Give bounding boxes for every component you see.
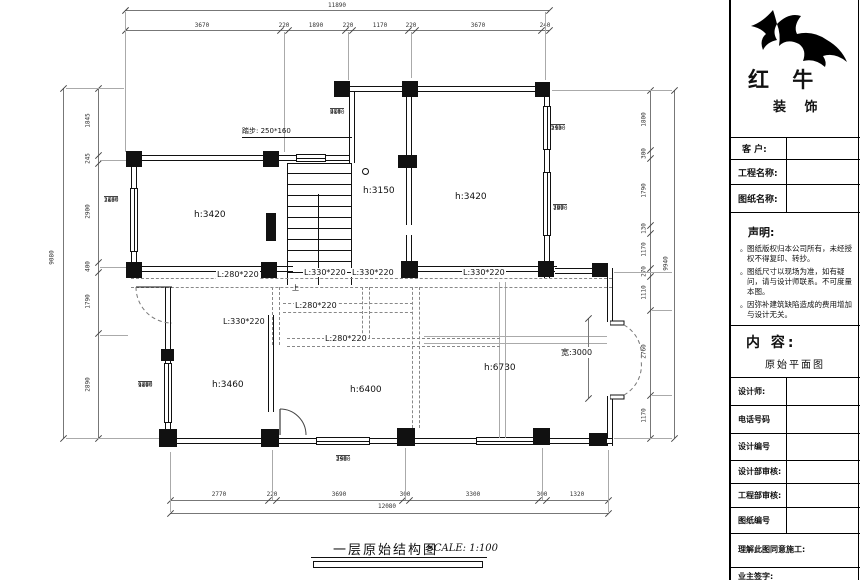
column [589, 433, 607, 446]
divider-line [731, 533, 860, 534]
beam-line [412, 287, 413, 428]
floor-plan: 11890 3670 220 1890 220 1170 220 3670 24… [0, 0, 730, 580]
dim-value: 220 [267, 22, 301, 29]
extension-line [652, 395, 672, 396]
room-height-label: h:3150 [363, 186, 395, 196]
dim-value: 3690 [322, 491, 356, 498]
field-label-designer: 设计师: [738, 386, 765, 397]
dim-value: 110 [551, 124, 562, 132]
field-label-customer: 客 户: [742, 142, 767, 155]
dim-value: 245 [85, 142, 92, 176]
beam-line [369, 287, 370, 338]
beam-line [287, 338, 500, 339]
room-height-label: h:3420 [455, 192, 487, 202]
beam-label: L:280*220 [216, 270, 260, 279]
column [538, 261, 554, 277]
staircase-edge [287, 163, 352, 164]
statement-title: 声明: [748, 224, 774, 240]
beam-line [272, 287, 273, 345]
beam-label: L:280*220 [294, 301, 338, 310]
beam-label: L:330*220 [462, 268, 506, 277]
window [164, 363, 172, 423]
room-height-label: h:3420 [194, 210, 226, 220]
drawing-sheet: 11890 3670 220 1890 220 1170 220 3670 24… [0, 0, 860, 580]
drawing-scale: SCALE: 1:100 [427, 543, 498, 554]
column [401, 261, 418, 278]
statement-item: 图纸版权归本公司所有，未经授权不得复印、转抄。 [740, 244, 854, 264]
statement-list: 图纸版权归本公司所有，未经授权不得复印、转抄。 图纸尺寸以现场为准，如有疑问，请… [740, 244, 854, 323]
dim-value: 2770 [202, 491, 236, 498]
wall [268, 315, 274, 412]
dim-value: 1845 [85, 104, 92, 138]
column [398, 155, 417, 168]
dim-value: 11890 [320, 2, 354, 9]
column [161, 349, 174, 361]
dim-value: 400 [85, 250, 92, 284]
beam-label: L:330*220 [222, 317, 266, 326]
beam-line [362, 287, 363, 338]
extension-line [411, 32, 412, 78]
entry-door [133, 282, 175, 328]
interior-door [277, 406, 307, 438]
dim-tick [585, 395, 592, 402]
dim-line-bottom-total [170, 513, 608, 514]
title-block: 红 牛 装 饰 客 户: 工程名称: 图纸名称: 声明: 图纸版权归本公司所有，… [729, 0, 860, 580]
border-line [858, 0, 859, 580]
company-name: 红 牛 [748, 64, 821, 94]
field-label-construction-consent: 理解此图同意施工: [738, 544, 805, 555]
dim-value: 1890 [299, 22, 333, 29]
divider-line [731, 460, 860, 461]
dim-line-left-total [63, 88, 64, 438]
extension-line [125, 12, 126, 152]
field-label-phone: 电话号码 [738, 414, 770, 425]
extension-line [545, 12, 546, 80]
window [476, 437, 534, 445]
beam-label: L:330*220 [303, 268, 347, 277]
dim-line-right-segments [650, 90, 651, 438]
structure-line [499, 282, 500, 438]
column [266, 213, 276, 241]
extension-line [100, 335, 128, 336]
dim-value: 150 [336, 455, 347, 463]
dim-value: 1790 [85, 285, 92, 319]
divider-line [731, 212, 860, 213]
dim-line-bottom-segments [170, 500, 608, 501]
column [263, 151, 279, 167]
structure-line [505, 282, 506, 438]
point-marker [362, 168, 369, 175]
field-label-drawing-name: 图纸名称: [738, 192, 778, 205]
extension-line [66, 88, 124, 89]
dim-value: 1170 [363, 22, 397, 29]
column [535, 82, 550, 97]
extension-line [608, 450, 609, 512]
stair-up-label: 上 [292, 283, 299, 293]
dim-value: 950 [330, 108, 341, 116]
statement-item: 因弥补建筑缺陷造成的费用增加与设计无关。 [740, 300, 854, 320]
dim-value: 900 [138, 381, 149, 389]
divider-line [731, 507, 860, 508]
dim-value: 1790 [641, 174, 648, 208]
divider-line [731, 184, 860, 185]
extension-line [100, 267, 128, 268]
extension-line [272, 450, 273, 500]
wall [418, 86, 549, 92]
beam-label: L:330*220 [351, 268, 395, 277]
dim-value: 2890 [85, 368, 92, 402]
door-width-label: 宽:3000 [560, 347, 593, 358]
dim-value: 1800 [641, 103, 648, 137]
beam-label: L:280*220 [324, 334, 368, 343]
extension-line [405, 448, 406, 500]
title-underline [311, 557, 487, 558]
beam-line [287, 346, 500, 347]
field-label-drawing-no: 图纸编号 [738, 515, 770, 526]
room-height-label: h:6400 [350, 385, 382, 395]
company-logo-bull-icon [739, 6, 851, 68]
staircase-treads [288, 173, 351, 283]
dim-value: 780 [553, 204, 564, 212]
door-dim-line [588, 318, 589, 398]
window [543, 106, 551, 150]
dim-line-right-total [674, 90, 675, 438]
title-underline-bar [313, 561, 483, 568]
window [543, 172, 551, 236]
extension-line [348, 32, 349, 80]
field-label-design-no: 设计编号 [738, 441, 770, 452]
dim-value: 3670 [185, 22, 219, 29]
dim-line-top-total [125, 10, 549, 11]
column [126, 262, 142, 278]
beam-line [419, 287, 420, 428]
divider-line [731, 483, 860, 484]
column [397, 428, 415, 446]
stair-tread-label: 踏步: 250*160 [242, 126, 291, 136]
dim-value: 1110 [641, 276, 648, 310]
dim-value: 1320 [560, 491, 594, 498]
extension-line [100, 160, 128, 161]
divider-line [731, 377, 860, 378]
divider-line [731, 137, 860, 138]
structure-line [424, 343, 607, 344]
content-value: 原始平面图 [765, 356, 825, 371]
leader-line [242, 137, 352, 138]
beam-line [279, 287, 280, 345]
wall [349, 88, 355, 163]
field-label-project-name: 工程名称: [738, 166, 778, 179]
column [126, 151, 142, 167]
extension-line [66, 438, 166, 439]
window [130, 188, 138, 252]
column [334, 81, 350, 97]
wall [131, 155, 281, 161]
column [592, 263, 608, 277]
divider-line [731, 159, 860, 160]
field-label-engineering-review: 工程部审核: [738, 490, 781, 501]
divider-line [786, 377, 787, 533]
dim-value: 3670 [461, 22, 495, 29]
window [296, 154, 326, 162]
room-height-label: h:3460 [212, 380, 244, 390]
content-title: 内 容: [746, 332, 796, 352]
dim-tick [671, 435, 678, 442]
extension-line [614, 272, 672, 273]
dim-value: 2900 [85, 195, 92, 229]
column [402, 81, 418, 97]
staircase-edge [351, 163, 352, 285]
dim-tick [546, 7, 553, 14]
divider-line [731, 567, 860, 568]
extension-line [170, 452, 171, 512]
window [316, 437, 370, 445]
extension-line [652, 310, 672, 311]
extension-line [542, 448, 543, 500]
extension-line [614, 438, 672, 439]
column [533, 428, 550, 445]
extension-line [552, 90, 672, 91]
dim-value: 9940 [663, 247, 670, 281]
column [159, 429, 177, 447]
dim-value: 9080 [49, 241, 56, 275]
dim-value: 3300 [456, 491, 490, 498]
beam-line [131, 278, 612, 279]
divider-line [731, 433, 860, 434]
divider-line [786, 137, 787, 212]
divider-line [731, 405, 860, 406]
beam-line [283, 312, 413, 313]
divider-line [731, 325, 860, 326]
statement-item: 图纸尺寸以现场为准，如有疑问，请与设计师联系。不可度量本图。 [740, 267, 854, 297]
dim-value: 110 [104, 196, 115, 204]
room-height-label: h:6730 [484, 363, 516, 373]
structure-line [424, 336, 607, 337]
column [261, 262, 277, 278]
beam-line [131, 287, 612, 288]
double-door [610, 316, 644, 404]
field-label-design-review: 设计部审核: [738, 466, 781, 477]
company-name-sub: 装 饰 [773, 96, 825, 115]
field-label-owner-signature: 业主签字: [738, 571, 773, 580]
dim-line-top-segments [125, 30, 549, 31]
drawing-title: 一层原始结构图 [333, 539, 438, 558]
